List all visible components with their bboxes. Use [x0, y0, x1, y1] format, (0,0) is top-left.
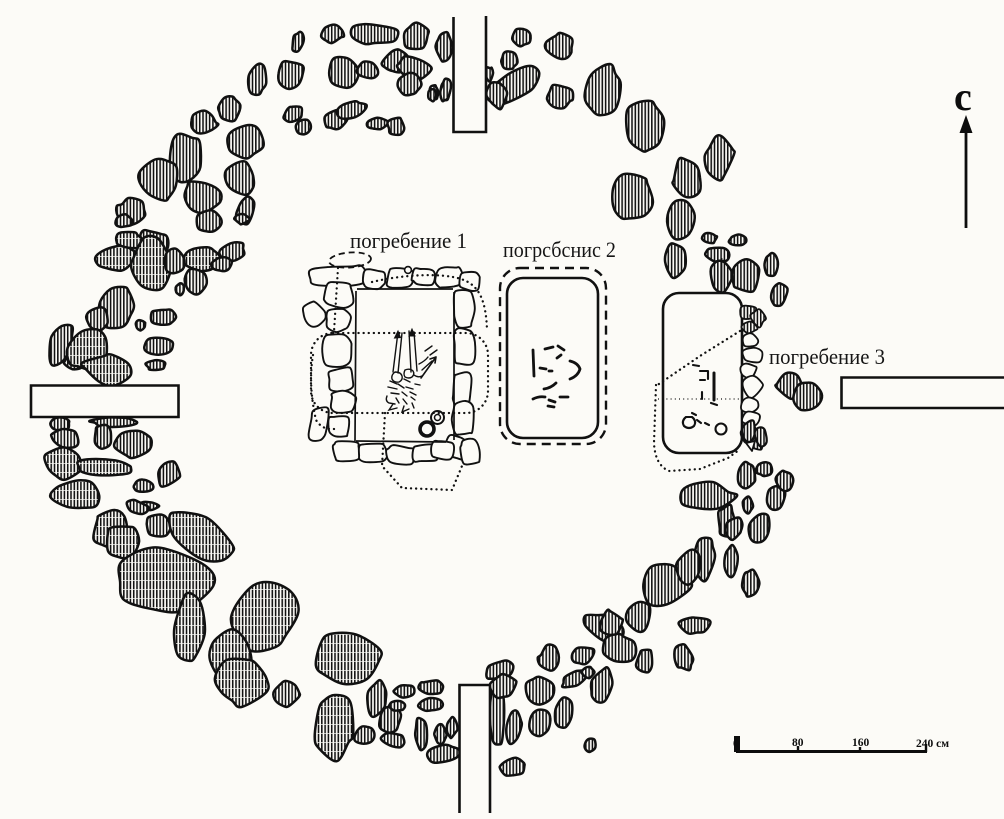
svg-text:80: 80	[792, 737, 804, 749]
svg-text:погрсбснис 2: погрсбснис 2	[503, 237, 616, 262]
svg-text:погребение 3: погребение 3	[769, 344, 885, 369]
svg-text:160: 160	[852, 737, 870, 749]
svg-text:240 см: 240 см	[916, 738, 949, 750]
svg-text:0: 0	[733, 738, 739, 750]
svg-text:погребение 1: погребение 1	[350, 228, 467, 253]
svg-text:с: с	[954, 74, 972, 119]
